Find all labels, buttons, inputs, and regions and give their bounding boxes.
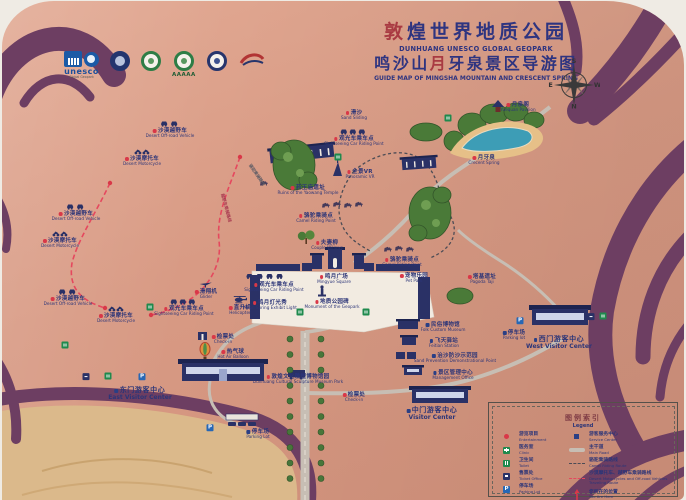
desert-moto-2-icon — [52, 230, 68, 237]
legend-row-red-dot: 游览项目Entertainment — [498, 432, 562, 442]
legend-en: Clinic — [519, 451, 533, 455]
poi-desert-offroad-3: 沙漠越野车Desert Off-road Vehicle — [44, 287, 93, 307]
poi-crescent-spring: 月牙泉Crecent Spring — [468, 155, 499, 166]
desert-offroad-2-icon — [67, 202, 85, 210]
title-zh-line1: 敦煌世界地质公园 — [370, 23, 582, 43]
toilet-icon — [105, 373, 112, 380]
poi-geopark-monument: 地质公园碑Monument of the Geopark — [304, 299, 359, 310]
poi-label-en: Mingyue Square — [317, 280, 351, 285]
poi-west-visitor-center: 西门游客中心West Visitor Center — [526, 336, 592, 350]
poi-label-en: Desert Motorcycle — [41, 244, 79, 249]
legend-en: Toilet — [519, 464, 533, 468]
sightseeing-car-1-icon — [341, 127, 368, 135]
dunhuang-tourism-logo — [238, 51, 266, 69]
poi-label-en: Sightseeing Car Riding Point — [154, 312, 213, 317]
poi-mingyue-square: 鸣月广场Mingyue Square — [317, 274, 351, 285]
parking-icon: P — [207, 423, 214, 431]
map-sign-board: unesco Global Geopark AAAAA 敦煌世界地质公园 DUN… — [2, 1, 684, 500]
aaaaa-scenic-area-logo: AAAAA — [172, 51, 196, 78]
camel-route-icon — [568, 463, 585, 464]
unesco-global-geopark-logo: unesco Global Geopark — [64, 51, 99, 79]
compass-top-letter: S — [572, 57, 577, 65]
poi-desert-offroad-1: 沙漠越野车Desert Off-road Vehicle — [146, 119, 195, 139]
poi-label-en: East Visitor Center — [108, 395, 172, 402]
toilet-icon — [62, 342, 69, 349]
poi-label-en: Couple Willows — [311, 246, 343, 251]
aaaaa-caption: AAAAA — [172, 72, 196, 78]
association-ring-logo — [207, 51, 227, 71]
poi-label-en: Desert Off-road Vehicle — [146, 134, 195, 139]
poi-label-en: Desert Off-road Vehicle — [52, 217, 101, 222]
poi-sand-sliding: 滑沙Sand Sliding — [341, 110, 367, 121]
poi-label-en: Sightseeing Car Riding Point — [324, 142, 383, 147]
global-geoparks-network-logo — [110, 51, 130, 71]
toilet-icon — [498, 460, 515, 467]
poi-sightseeing-car-2: 观光车乘车点Sightseeing Car Riding Point — [154, 297, 213, 317]
route-label: 骆驼乘骑路线 — [247, 163, 266, 187]
poi-desert-moto-1: 沙漠摩托车Desert Motorcycle — [123, 148, 161, 167]
compass-rose: S N E W — [548, 57, 600, 113]
parking-icon: P — [139, 372, 146, 380]
poi-label-en: Pet Park — [406, 279, 423, 284]
legend-en: You Are Here — [589, 495, 618, 499]
poi-label-en: Monument of the Geopark — [304, 305, 359, 310]
poi-label-en: Panoramic VR — [345, 175, 374, 180]
poi-label-en: Pagoda Taji — [470, 280, 493, 285]
poi-camel-riding-1: 骆驼乘骑点Camel Riding Point — [296, 213, 336, 224]
clinic-icon — [498, 447, 515, 454]
poi-panoramic-vr: 全景VRPanoramic VR — [345, 169, 374, 180]
legend-en: Camel Riding Route — [589, 464, 626, 468]
poi-label-en: Sightseeing Car Riding Point — [244, 288, 303, 293]
poi-label-en: Camel Riding Point — [382, 263, 422, 268]
legend-en: Desert Motorcycles and Off-road Vehicles… — [589, 477, 670, 486]
toilet-icon — [147, 304, 154, 311]
poi-label-en: Crecent Spring — [468, 161, 499, 166]
legend-row-ticket: 售票处Ticket Office — [498, 471, 562, 481]
unesco-subcaption: Global Geopark — [69, 76, 94, 79]
poi-sand-prevention-point: 治沙防沙示范园Sand Prevention Demonstrational P… — [414, 353, 496, 364]
poi-label-en: Sand Prevention Demonstrational Point — [414, 359, 496, 364]
geopark-globe-icon — [84, 52, 99, 67]
legend-row-parking: P停车场Parking Lot — [498, 484, 562, 494]
glider-icon — [199, 281, 213, 288]
poi-yaowang-temple-ruins: 药王庙遗址Ruins of the Yaowang Temple — [278, 185, 339, 196]
poi-label-en: West Visitor Center — [526, 344, 592, 351]
photo-of-map-sign: unesco Global Geopark AAAAA 敦煌世界地质公园 DUN… — [0, 0, 686, 500]
parking-icon: P — [498, 486, 515, 493]
legend-en: Service Center — [589, 438, 618, 442]
poi-check-in-east: 检票处Check-in — [212, 334, 234, 345]
ticket-icon — [498, 473, 515, 480]
road-icon — [568, 448, 585, 452]
poi-label-en: Folk Custom Museum — [421, 328, 466, 333]
toilet-icon — [445, 115, 452, 122]
desert-offroad-3-icon — [59, 287, 77, 295]
poi-folk-custom-museum: 民俗博物馆Folk Custom Museum — [421, 322, 466, 333]
blue-dot-icon — [407, 409, 411, 413]
poi-label-en: Helicopter — [229, 311, 251, 316]
compass-bottom-letter: N — [571, 103, 576, 110]
legend-en: Main Road — [589, 451, 609, 455]
blue-dot-icon — [568, 434, 585, 439]
legend-row-camel-route: 骆驼乘骑路线Camel Riding Route — [568, 458, 670, 468]
poi-label-en: Desert Motorcycle — [123, 162, 161, 167]
poi-management-office: 景区管理中心Management Office — [432, 370, 473, 381]
legend-row-you-are-here: 您所在的位置You Are Here — [568, 489, 670, 500]
geopark-green-logo — [141, 51, 161, 71]
poi-desert-moto-3: 沙漠摩托车Desert Motorcycle — [97, 305, 135, 324]
poi-pet-park: 宠物乐园Pet Park — [400, 273, 428, 284]
compass-right-letter: W — [594, 81, 600, 89]
poi-desert-offroad-2: 沙漠越野车Desert Off-road Vehicle — [52, 202, 101, 222]
poi-parking-main: 停车场Parking Lot — [246, 429, 269, 440]
poi-parking-west: 停车场Parking lot — [503, 330, 525, 341]
poi-desert-moto-2: 沙漠摩托车Desert Motorcycle — [41, 230, 79, 249]
legend-row-clinic: 医务室Clinic — [498, 445, 562, 455]
red-dot-icon — [400, 274, 404, 278]
poi-label-en: Visitor Center — [409, 415, 456, 422]
poi-sightseeing-car-3: 观光车乘车点Sightseeing Car Riding Point — [244, 282, 303, 293]
legend-row-toilet: 卫生间Toilet — [498, 458, 562, 468]
toilet-icon — [600, 313, 607, 320]
poi-label-en: Feitian Station — [429, 344, 459, 349]
blue-dot-icon — [115, 389, 119, 393]
you-are-here-icon — [568, 489, 585, 500]
poi-label-en: Hot Air Balloon — [217, 355, 248, 360]
poi-label-en: Yuequan Pavilion — [500, 108, 535, 113]
legend-row-road: 主干道Main Road — [568, 445, 670, 455]
poi-glider: 滑翔机Glider — [195, 281, 217, 300]
legend-row-red-route: 沙漠摩托车、越野车乘骑路线Desert Motorcycles and Off-… — [568, 471, 670, 485]
parking-icon: P — [517, 316, 524, 324]
desert-moto-1-icon — [134, 148, 150, 155]
legend-en: Entertainment — [519, 438, 546, 442]
logo-strip: unesco Global Geopark AAAAA — [64, 51, 266, 79]
poi-label-en: Check-in — [345, 398, 363, 403]
poi-sightseeing-car-1: 观光车乘车点Sightseeing Car Riding Point — [324, 127, 383, 147]
route-label: 越野车乘骑路线 — [219, 193, 232, 223]
legend-box: 图例索引 Legend 游览项目Entertainment医务室Clinic卫生… — [488, 402, 678, 497]
poi-label-en: Camel Riding Point — [296, 219, 336, 224]
poi-check-in-center: 检票处Check-in — [343, 392, 365, 403]
poi-pagoda-taji: 塔基遗址Pagoda Taji — [468, 274, 496, 285]
toilet-icon — [297, 309, 304, 316]
poi-label-en: Parking lot — [503, 336, 525, 341]
poi-label-en: Parking Lot — [246, 435, 269, 440]
legend-row-blue-dot: 游客服务中心Service Center — [568, 432, 670, 442]
red-dot-icon — [498, 434, 515, 439]
poi-label-en: Sand Sliding — [341, 116, 367, 121]
legend-right-column: 游客服务中心Service Center主干道Main Road骆驼乘骑路线Ca… — [568, 432, 670, 500]
poi-sculpture-museum-park: 敦煌文化雕塑博物馆园Dunhuang Cultural Sculpture Mu… — [253, 374, 343, 385]
legend-left-column: 游览项目Entertainment医务室Clinic卫生间Toilet售票处Ti… — [498, 432, 562, 500]
legend-en: Ticket Office — [519, 477, 543, 481]
poi-hot-air-balloon: 热气球Hot Air Balloon — [217, 349, 248, 360]
poi-label-en: Moon Spring Exhibit Light — [243, 306, 297, 311]
poi-label-en: Check-in — [214, 340, 232, 345]
poi-label-en: Glider — [200, 295, 213, 300]
ticket-office-icon — [83, 372, 90, 380]
ticket-office-icon — [588, 312, 595, 320]
toilet-icon — [363, 309, 370, 316]
poi-east-visitor-center: 东门游客中心East Visitor Center — [108, 387, 172, 401]
legend-title: 图例索引 Legend — [489, 407, 677, 429]
poi-center-visitor-center: 中门游客中心Visitor Center — [407, 407, 458, 421]
poi-label-en: Desert Off-road Vehicle — [44, 302, 93, 307]
legend-en: Parking Lot — [519, 490, 540, 494]
title-en-line1: DUNHUANG UNESCO GLOBAL GEOPARK — [370, 45, 582, 53]
desert-moto-3-icon — [108, 305, 124, 312]
compass-left-letter: E — [548, 81, 552, 89]
poi-yuequan-pavilion: 月泉阁Yuequan Pavilion — [500, 102, 535, 113]
poi-label-en: Dunhuang Cultural Sculpture Museum Park — [253, 380, 343, 385]
poi-label-en: Management Office — [432, 376, 473, 381]
red-dot-icon — [195, 290, 199, 294]
toilet-icon — [335, 154, 342, 161]
unesco-emblem-icon — [64, 51, 82, 67]
camel-swoosh-icon — [238, 51, 266, 69]
desert-offroad-1-icon — [161, 119, 179, 127]
red-route-icon — [568, 478, 585, 479]
sightseeing-car-2-icon — [171, 297, 198, 305]
poi-couple-willows: 夫妻柳Couple Willows — [311, 240, 343, 251]
poi-moon-light-show: 鸣月灯光秀Moon Spring Exhibit Light — [243, 300, 297, 311]
poi-camel-riding-2: 骆驼乘骑点Camel Riding Point — [382, 257, 422, 268]
poi-feitian-station: 飞天驿站Feitian Station — [429, 338, 459, 349]
poi-label-en: Desert Motorcycle — [97, 319, 135, 324]
poi-label-en: Ruins of the Yaowang Temple — [278, 191, 339, 196]
blue-dot-icon — [534, 338, 538, 342]
